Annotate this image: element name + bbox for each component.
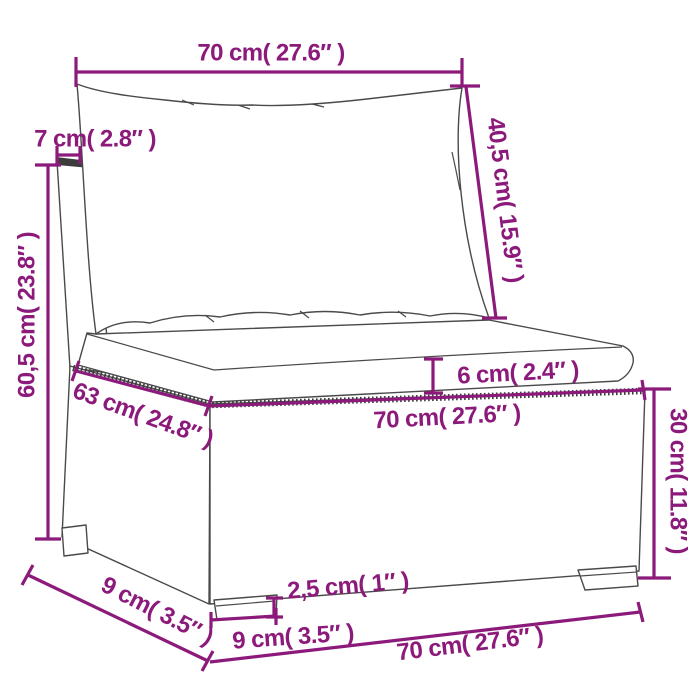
foot-front-right — [578, 566, 638, 590]
foot-back-left — [62, 525, 88, 556]
dim-label-cushion-thickness: 6 cm( 2.4″ ) — [457, 356, 580, 389]
dim-label-back-thickness: 7 cm( 2.8″ ) — [34, 126, 156, 153]
product-dimension-diagram: 70 cm( 27.6″ ) 7 cm( 2.8″ ) 60,5 cm( 23.… — [0, 0, 700, 700]
sofa-dimension-drawing: 70 cm( 27.6″ ) 7 cm( 2.8″ ) 60,5 cm( 23.… — [0, 0, 700, 700]
dim-label-total-height: 60,5 cm( 23.8″ ) — [14, 232, 41, 398]
dim-label-top-width: 70 cm( 27.6″ ) — [197, 40, 344, 67]
dim-label-bottom-width: 70 cm( 27.6″ ) — [395, 622, 544, 667]
back-cushion — [77, 84, 489, 334]
dim-label-foot-width: 9 cm( 3.5″ ) — [231, 619, 354, 654]
dim-label-base-height: 30 cm( 11.8″ ) — [665, 408, 692, 554]
